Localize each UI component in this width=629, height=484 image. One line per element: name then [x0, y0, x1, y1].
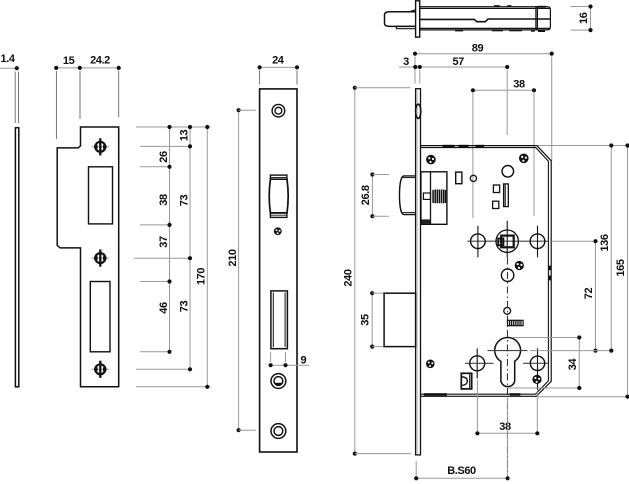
svg-text:38: 38 [499, 421, 511, 433]
svg-text:1.4: 1.4 [1, 53, 16, 65]
svg-text:165: 165 [615, 259, 627, 276]
svg-text:72: 72 [583, 288, 595, 300]
svg-text:24.2: 24.2 [90, 55, 110, 67]
svg-text:26.8: 26.8 [360, 185, 372, 205]
svg-text:73: 73 [178, 301, 190, 313]
svg-text:34: 34 [567, 358, 579, 371]
svg-text:73: 73 [178, 195, 190, 207]
svg-text:24: 24 [272, 55, 285, 67]
svg-text:57: 57 [452, 56, 464, 68]
svg-text:46: 46 [158, 302, 170, 314]
svg-text:38: 38 [158, 194, 170, 206]
svg-text:3: 3 [403, 56, 409, 68]
svg-text:210: 210 [227, 249, 239, 266]
svg-text:240: 240 [342, 269, 354, 286]
svg-text:136: 136 [599, 234, 611, 251]
svg-text:B.S60: B.S60 [447, 465, 476, 477]
svg-text:13: 13 [178, 130, 190, 142]
svg-text:37: 37 [158, 236, 170, 248]
svg-text:170: 170 [196, 268, 208, 285]
svg-text:89: 89 [472, 43, 484, 55]
svg-text:9: 9 [301, 355, 307, 367]
svg-text:16: 16 [578, 12, 590, 24]
svg-text:35: 35 [360, 314, 372, 326]
svg-text:26: 26 [158, 151, 170, 163]
svg-text:15: 15 [63, 55, 75, 67]
svg-text:38: 38 [513, 79, 525, 91]
